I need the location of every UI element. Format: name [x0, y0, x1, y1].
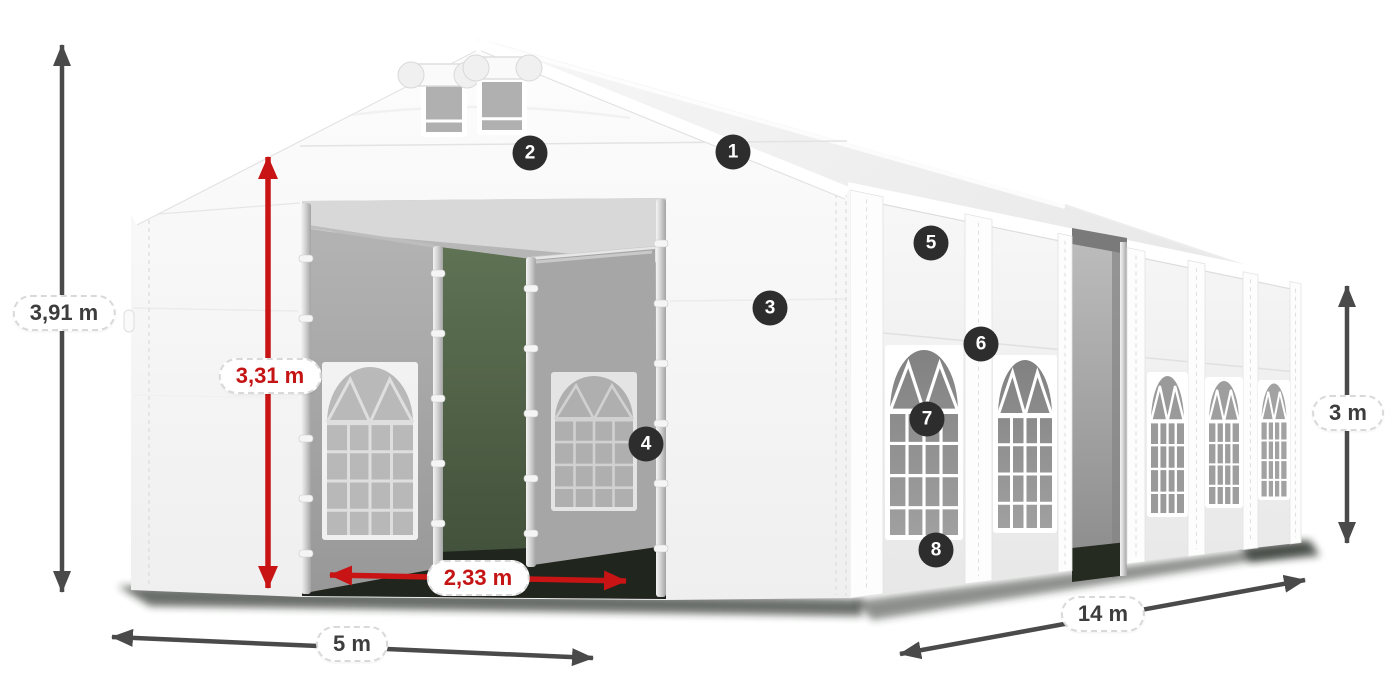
entrance-interior — [299, 198, 668, 599]
side-door-opening — [1072, 228, 1127, 582]
entrance-right-door — [531, 249, 657, 565]
tent-dimension-diagram: 3,91 m3,31 m2,33 m5 m14 m3 m 12345678 — [0, 0, 1400, 700]
tent-side-wall — [848, 182, 1301, 598]
dimension-tent-width — [112, 637, 593, 658]
tent-illustration — [0, 0, 1400, 700]
entrance-left-door — [305, 228, 440, 593]
